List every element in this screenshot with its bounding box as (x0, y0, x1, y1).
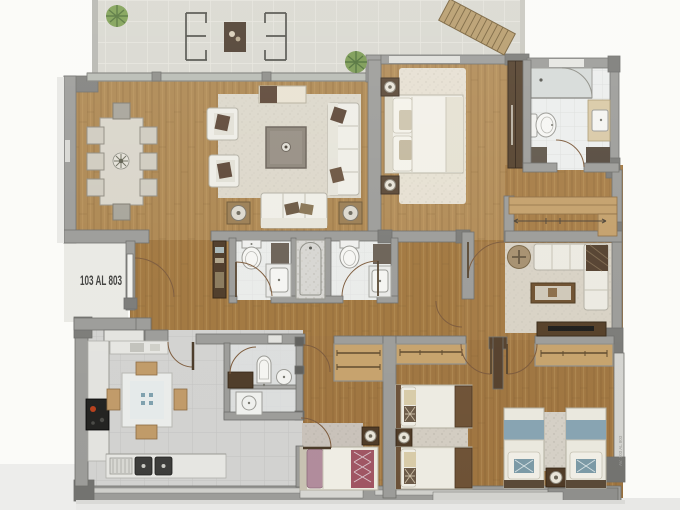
svg-text:AV. 103 AL 803: AV. 103 AL 803 (618, 435, 623, 466)
svg-text:103 AL 803: 103 AL 803 (80, 273, 122, 288)
